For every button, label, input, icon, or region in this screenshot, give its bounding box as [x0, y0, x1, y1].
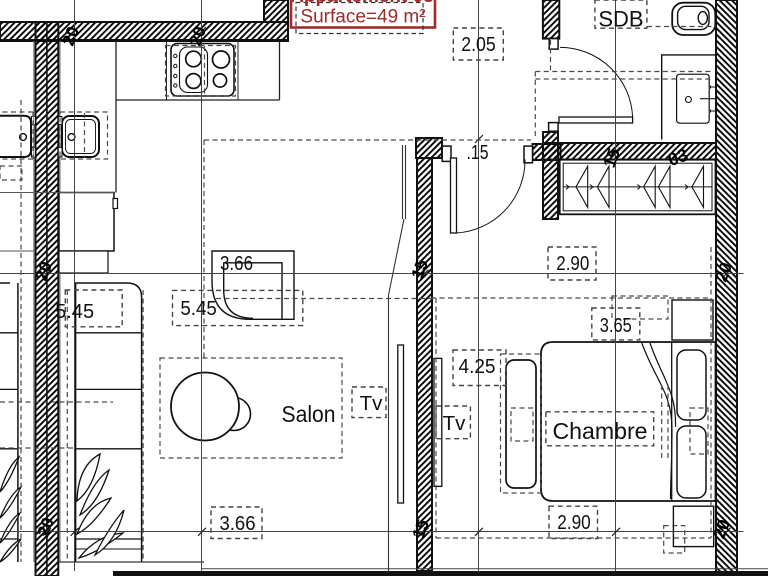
svg-text:Tv: Tv: [360, 392, 384, 415]
svg-text:SDB: SDB: [598, 7, 643, 32]
svg-text:2.05: 2.05: [461, 33, 496, 56]
svg-text:5.45: 5.45: [55, 300, 94, 323]
svg-text:3.66: 3.66: [220, 252, 253, 275]
svg-text:3.65: 3.65: [600, 314, 632, 337]
svg-text:.15: .15: [467, 141, 489, 164]
svg-text:2.90: 2.90: [557, 511, 591, 534]
svg-text:Salon: Salon: [282, 401, 336, 427]
svg-text:2.90: 2.90: [556, 252, 589, 275]
svg-text:4.25: 4.25: [459, 355, 496, 378]
svg-text:Chambre: Chambre: [553, 418, 648, 444]
svg-text:Surface=49 m²: Surface=49 m²: [300, 7, 425, 28]
svg-text:3.66: 3.66: [220, 512, 256, 535]
svg-text:Tv: Tv: [443, 412, 467, 435]
svg-text:5.45: 5.45: [180, 297, 217, 320]
